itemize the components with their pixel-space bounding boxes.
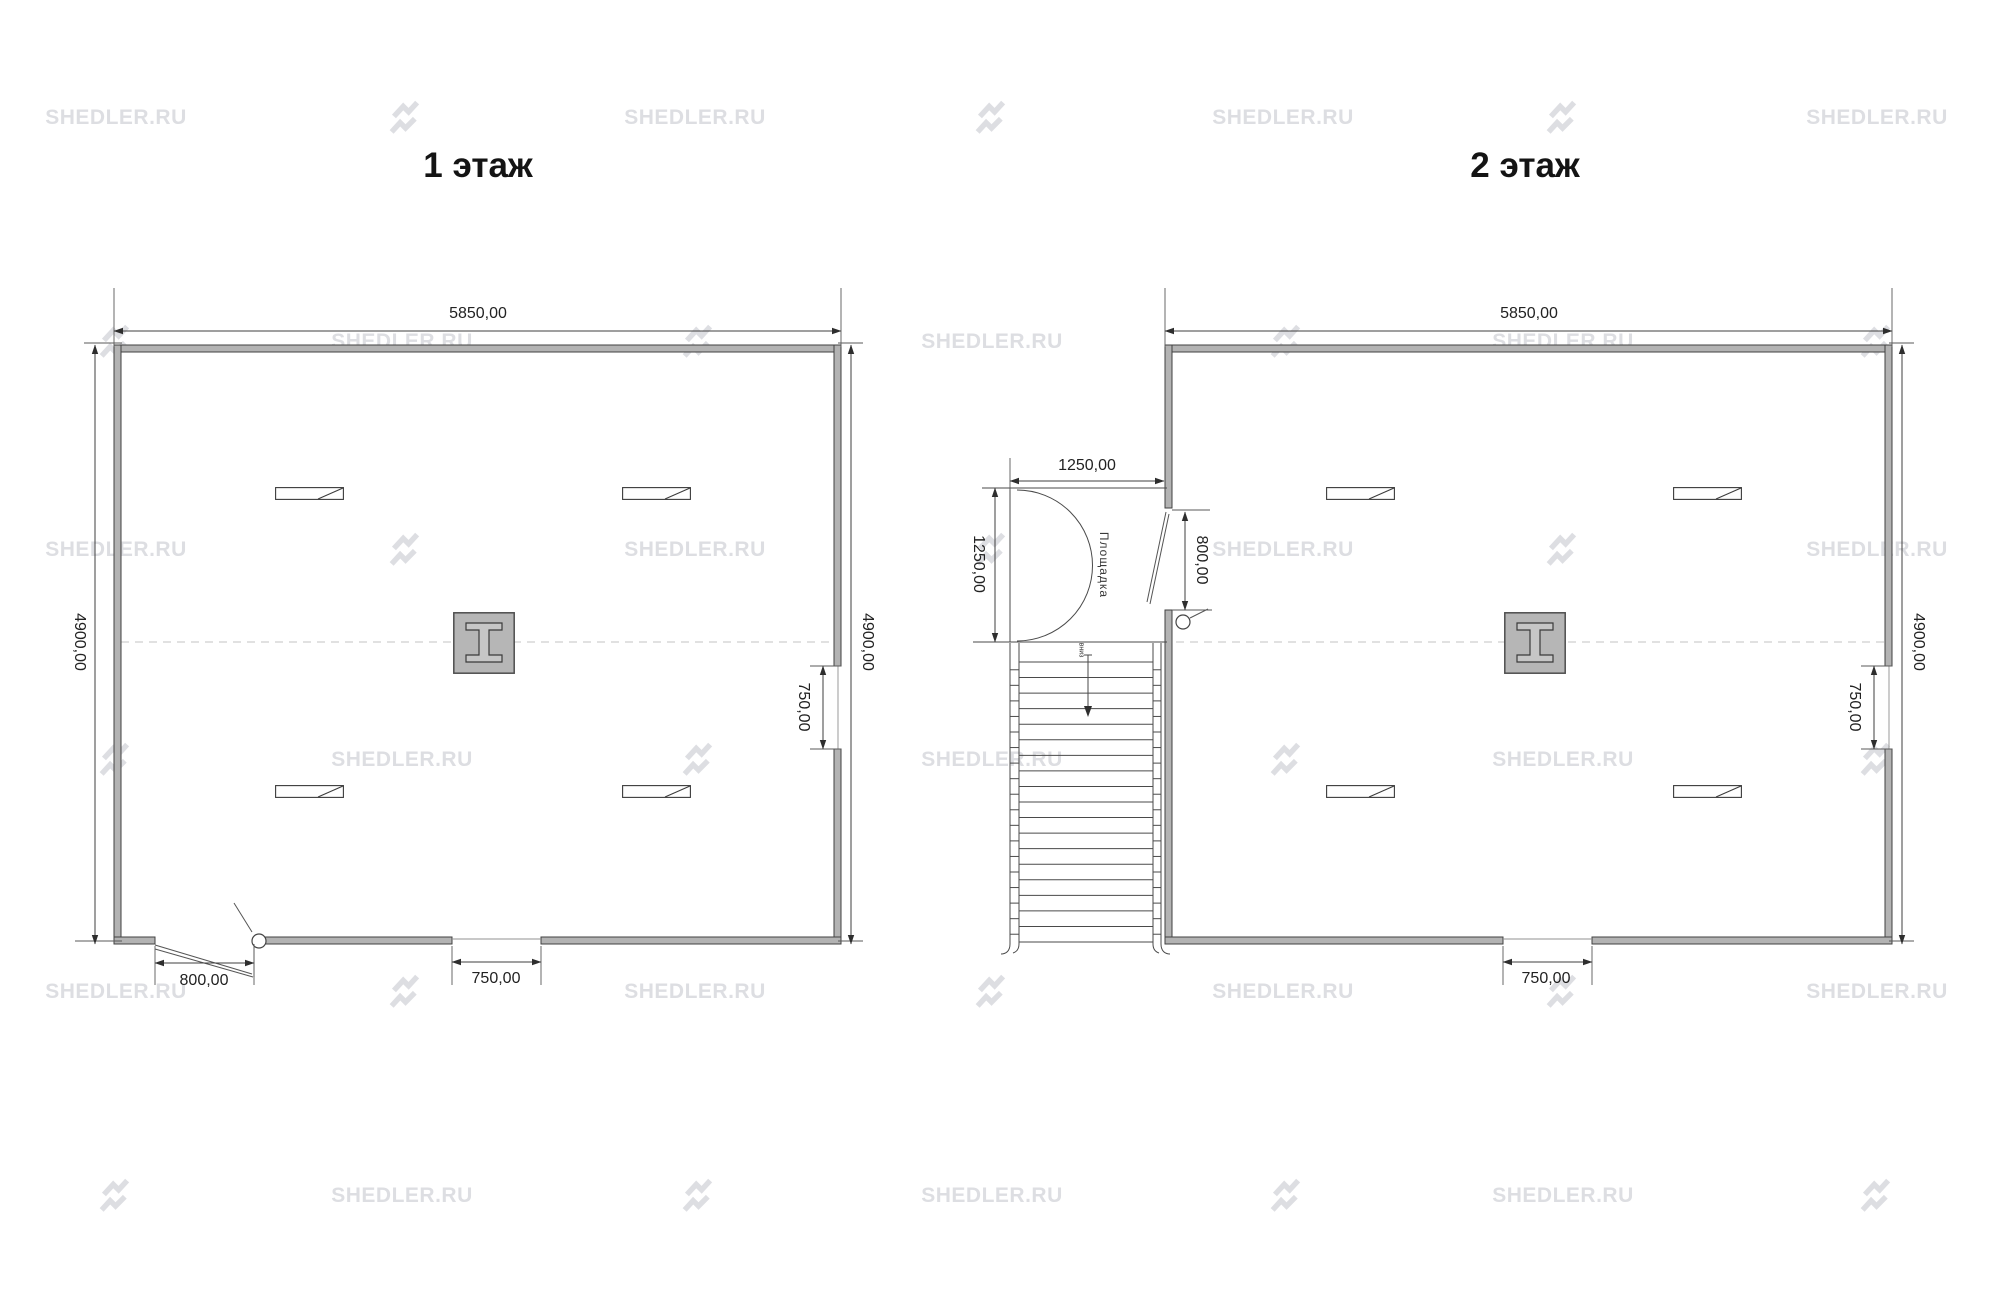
plan1-dim-door: 800,00 [180,972,229,990]
plan2-dim-bottom-opening: 750,00 [1522,970,1571,988]
plan1-dim-left: 4900,00 [70,613,88,671]
plan2-title: 2 этаж [1470,146,1579,186]
plan2-dim-door: 800,00 [1192,536,1210,585]
plan2-dim-right: 4900,00 [1909,613,1927,671]
plan2-dim-right-opening: 750,00 [1845,683,1863,732]
plan2-dim-landing-width: 1250,00 [1058,457,1116,475]
plan2-dim-top: 5850,00 [1500,305,1558,323]
plan1-dim-right: 4900,00 [858,613,876,671]
plan1-dim-bottom-opening: 750,00 [472,970,521,988]
labels-layer: 1 этаж 2 этаж 5850,00 4900,00 4900,00 75… [0,0,2000,1300]
floor-plan-document: SHEDLER.RUSHEDLER.RUSHEDLER.RUSHEDLER.RU… [0,0,2000,1300]
stair-direction-label: вниз [1078,643,1085,658]
plan1-dim-top: 5850,00 [449,305,507,323]
plan1-title: 1 этаж [423,146,532,186]
plan2-dim-landing-depth: 1250,00 [969,535,987,593]
landing-label: Площадка [1097,532,1111,598]
plan1-dim-right-opening: 750,00 [794,683,812,732]
